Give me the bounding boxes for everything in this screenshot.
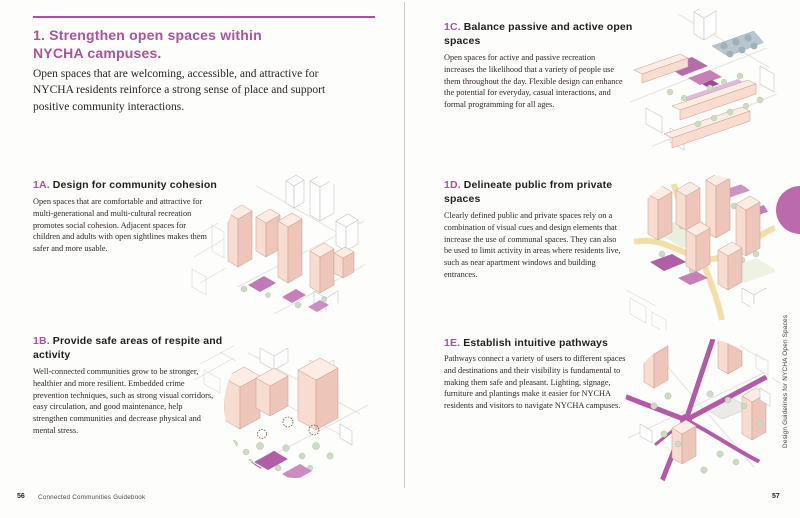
illustration-1a-lineart-margin [192, 223, 226, 295]
section-1c-body: Open spaces for active and passive recre… [444, 52, 624, 111]
section-1c-heading: 1C.Balance passive and active open space… [444, 20, 639, 48]
section-1e-number: 1E. [444, 337, 460, 349]
section-1d-number: 1D. [444, 179, 461, 191]
section-1c-number: 1C. [444, 21, 461, 33]
illustration-1d-lineart-margin [626, 290, 666, 330]
section-1a-number: 1A. [33, 179, 50, 191]
section-1e-body: Pathways connect a variety of users to d… [444, 353, 626, 412]
section-1d-heading: 1D.Delineate public from private spaces [444, 178, 614, 206]
section-1b-number: 1B. [33, 335, 50, 347]
section-1c-title: Balance passive and active open spaces [444, 21, 632, 47]
intro-paragraph: Open spaces that are welcoming, accessib… [33, 66, 345, 115]
page-spine-divider [404, 2, 405, 488]
section-1a-body: Open spaces that are comfortable and att… [33, 196, 213, 255]
illustration-1d [622, 170, 790, 330]
book-title-footer: Connected Communities Guidebook [38, 494, 145, 501]
section-1e-title: Establish intuitive pathways [463, 337, 608, 349]
illustration-1a [190, 165, 375, 330]
page-title: 1. Strengthen open spaces within NYCHA c… [33, 26, 303, 63]
right-page-number: 57 [772, 493, 780, 500]
left-page-number: 56 [17, 493, 25, 500]
title-rule [33, 16, 375, 18]
section-1d-body: Clearly defined public and private space… [444, 210, 626, 281]
sidebar-chapter-label: Design Guidelines for NYCHA Open Spaces [782, 352, 789, 448]
illustration-1b [190, 328, 375, 488]
illustration-1c [618, 6, 788, 166]
illustration-1e [620, 334, 786, 498]
section-1d-title: Delineate public from private spaces [444, 179, 612, 205]
